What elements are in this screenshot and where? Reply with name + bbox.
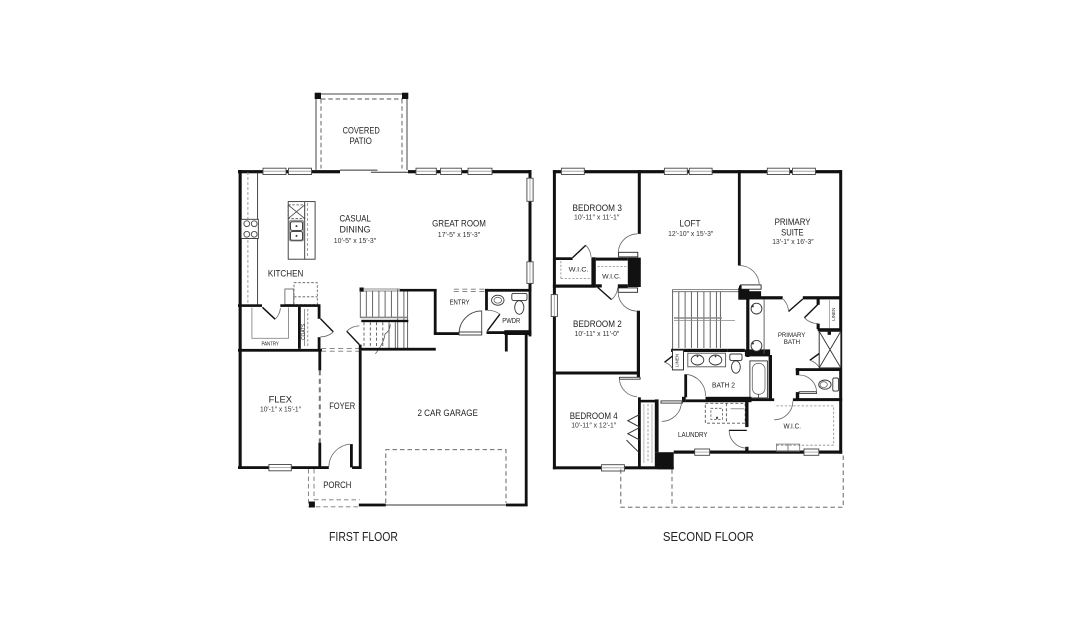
svg-text:PRIMARY: PRIMARY: [778, 332, 806, 339]
svg-text:FLEX: FLEX: [269, 394, 293, 404]
svg-text:GREAT ROOM: GREAT ROOM: [432, 218, 486, 228]
svg-text:10′-1″ x 15′-1″: 10′-1″ x 15′-1″: [260, 407, 302, 414]
svg-text:10′-5″ x 15′-3″: 10′-5″ x 15′-3″: [334, 238, 377, 245]
svg-text:DINING: DINING: [340, 225, 371, 235]
svg-text:SECOND FLOOR: SECOND FLOOR: [663, 530, 754, 544]
svg-text:BEDROOM 2: BEDROOM 2: [573, 319, 622, 329]
svg-text:COATS: COATS: [301, 323, 307, 339]
svg-text:LINEN: LINEN: [831, 308, 836, 321]
svg-text:COVERED: COVERED: [343, 125, 380, 135]
svg-text:CASUAL: CASUAL: [340, 214, 371, 224]
svg-text:13′-1″ x 16′-3″: 13′-1″ x 16′-3″: [772, 239, 814, 246]
svg-text:BEDROOM 3: BEDROOM 3: [573, 203, 622, 213]
svg-text:BEDROOM 4: BEDROOM 4: [570, 411, 618, 421]
svg-text:10′-11″ x 11′-0″: 10′-11″ x 11′-0″: [575, 331, 620, 338]
svg-text:W.I.C.: W.I.C.: [569, 267, 589, 273]
svg-text:ENTRY: ENTRY: [450, 297, 470, 306]
svg-text:LINEN: LINEN: [675, 354, 680, 367]
svg-text:W.I.C.: W.I.C.: [602, 274, 621, 280]
svg-text:10′-11″ x 11′-1″: 10′-11″ x 11′-1″: [574, 214, 620, 221]
svg-text:PATIO: PATIO: [350, 136, 373, 146]
svg-text:LOFT: LOFT: [680, 219, 702, 229]
svg-text:FIRST FLOOR: FIRST FLOOR: [329, 530, 398, 544]
svg-text:10′-11″ x 12′-1″: 10′-11″ x 12′-1″: [571, 422, 617, 429]
svg-text:FOYER: FOYER: [329, 401, 355, 411]
svg-text:PORCH: PORCH: [323, 480, 351, 490]
svg-text:BATH: BATH: [784, 339, 800, 346]
svg-text:PWDR: PWDR: [502, 316, 520, 325]
svg-text:LAUNDRY: LAUNDRY: [678, 432, 708, 439]
svg-text:PANTRY: PANTRY: [262, 341, 280, 347]
svg-text:17′-5″ x 15′-3″: 17′-5″ x 15′-3″: [438, 232, 481, 239]
svg-text:12′-10″ x 15′-3″: 12′-10″ x 15′-3″: [668, 231, 714, 238]
svg-text:KITCHEN: KITCHEN: [268, 268, 303, 278]
svg-text:2 CAR GARAGE: 2 CAR GARAGE: [417, 408, 478, 418]
svg-text:PRIMARY: PRIMARY: [775, 217, 811, 227]
svg-text:SUITE: SUITE: [781, 227, 804, 237]
svg-text:BATH 2: BATH 2: [712, 382, 735, 390]
svg-text:W.I.C.: W.I.C.: [784, 424, 802, 431]
